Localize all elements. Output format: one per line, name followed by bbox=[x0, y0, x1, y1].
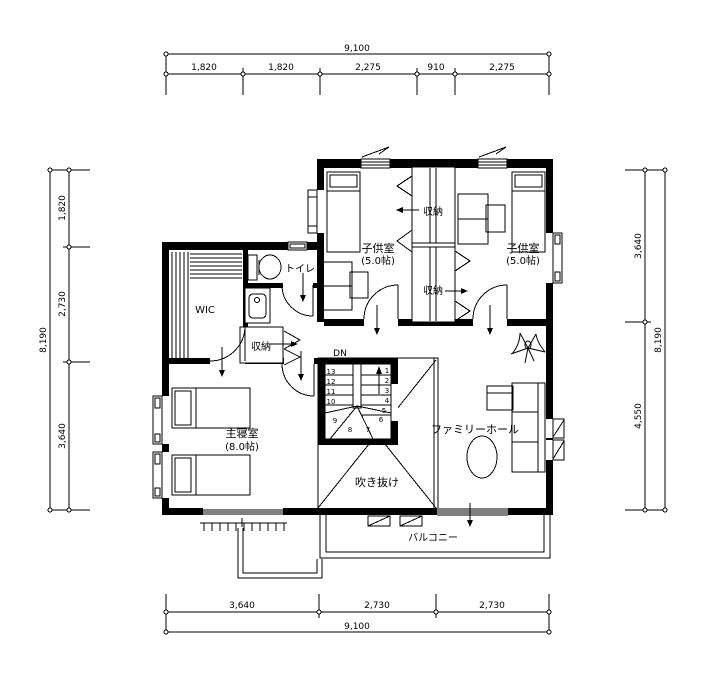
dim-top-seg0: 1,820 bbox=[191, 63, 217, 73]
dim-top-seg3: 910 bbox=[427, 63, 444, 73]
stair-num-1: 1 bbox=[385, 367, 389, 375]
dim-right-total: 8,190 bbox=[654, 327, 664, 353]
stair-num-10: 10 bbox=[327, 398, 336, 406]
label-kids-right-size: (5.0帖) bbox=[506, 254, 540, 267]
dim-bottom-seg2: 2,730 bbox=[479, 601, 505, 611]
dim-left-seg0: 1,820 bbox=[58, 195, 68, 221]
label-closet-upper: 収納 bbox=[423, 205, 443, 218]
label-family-hall: ファミリーホール bbox=[431, 423, 519, 436]
label-master-name: 主寝室 bbox=[226, 426, 259, 440]
label-balcony: バルコニー bbox=[408, 532, 458, 544]
dim-left-seg1: 2,730 bbox=[58, 291, 68, 317]
balcony-area bbox=[238, 515, 550, 578]
dim-top-total: 9,100 bbox=[344, 44, 370, 54]
stair-num-13: 13 bbox=[327, 368, 336, 376]
dim-right-seg1: 4,550 bbox=[634, 403, 644, 429]
dim-top-seg4: 2,275 bbox=[489, 63, 515, 73]
label-void: 吹き抜け bbox=[355, 475, 399, 489]
label-kids-left-size: (5.0帖) bbox=[361, 254, 395, 267]
dim-right-seg0: 3,640 bbox=[634, 233, 644, 259]
label-master-size: (8.0帖) bbox=[225, 440, 259, 453]
floor-plan-page: 9,100 1,820 1,820 2,275 910 2,275 8,190 … bbox=[0, 0, 710, 680]
desk-kids-left bbox=[322, 262, 368, 310]
floor-plan-drawing: 9,100 1,820 1,820 2,275 910 2,275 8,190 … bbox=[0, 0, 710, 680]
label-closet-lower: 収納 bbox=[423, 284, 443, 297]
bed-kids-right bbox=[512, 172, 545, 252]
label-kids-left-name: 子供室 bbox=[362, 241, 395, 255]
stair-num-4: 4 bbox=[385, 397, 390, 405]
stair-num-3: 3 bbox=[385, 387, 389, 395]
plant-icon bbox=[511, 333, 545, 363]
stair-num-6: 6 bbox=[379, 416, 384, 424]
dim-top-seg2: 2,275 bbox=[355, 63, 381, 73]
dimension-bottom: 9,100 3,640 2,730 2,730 bbox=[164, 594, 551, 634]
toilet-fixture-icon bbox=[248, 255, 281, 280]
bed-master-1 bbox=[172, 388, 250, 428]
staircase: DN 13 12 11 10 1 2 3 4 5 9 8 7 6 bbox=[318, 349, 398, 445]
walls bbox=[162, 159, 553, 515]
table-icon bbox=[467, 436, 497, 478]
dim-left-total: 8,190 bbox=[39, 327, 49, 353]
dimension-top: 9,100 1,820 1,820 2,275 910 2,275 bbox=[164, 44, 551, 95]
dim-bottom-seg0: 3,640 bbox=[229, 601, 255, 611]
stair-num-5: 5 bbox=[382, 407, 386, 415]
stair-num-12: 12 bbox=[327, 378, 336, 386]
washbasin-icon bbox=[245, 288, 270, 323]
bed-master-2 bbox=[172, 455, 250, 495]
dim-top-seg1: 1,820 bbox=[268, 63, 294, 73]
label-closet-hall: 収納 bbox=[251, 340, 271, 353]
stair-num-7: 7 bbox=[366, 426, 370, 434]
stair-num-8: 8 bbox=[348, 426, 352, 434]
label-kids-right-name: 子供室 bbox=[507, 241, 540, 255]
stair-num-11: 11 bbox=[327, 388, 336, 396]
dim-bottom-seg1: 2,730 bbox=[364, 601, 390, 611]
stairs-dn-label: DN bbox=[333, 349, 347, 359]
dim-bottom-total: 9,100 bbox=[344, 622, 370, 632]
stair-num-9: 9 bbox=[333, 417, 337, 425]
stair-num-2: 2 bbox=[385, 377, 389, 385]
label-wic: WIC bbox=[195, 305, 215, 316]
desk-kids-right bbox=[458, 194, 505, 244]
label-toilet: トイレ bbox=[285, 264, 315, 275]
dimension-left: 8,190 1,820 2,730 3,640 bbox=[39, 168, 90, 512]
dim-left-seg2: 3,640 bbox=[58, 423, 68, 449]
dimension-right: 8,190 3,640 4,550 bbox=[625, 168, 667, 512]
bed-kids-left bbox=[327, 172, 360, 252]
